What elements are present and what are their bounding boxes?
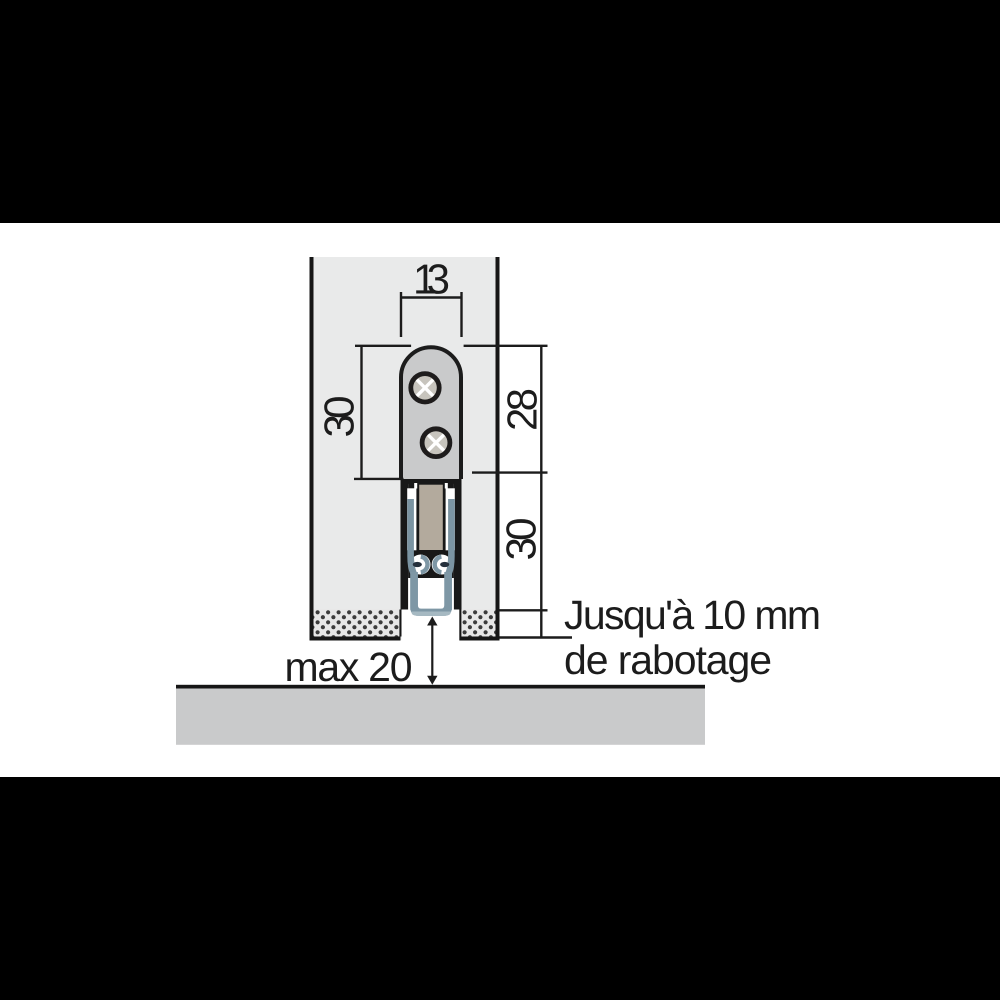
svg-text:30: 30 — [498, 518, 545, 561]
svg-text:13: 13 — [413, 256, 450, 303]
svg-text:28: 28 — [499, 388, 546, 431]
svg-text:de rabotage: de rabotage — [564, 637, 772, 683]
svg-text:30: 30 — [316, 396, 363, 438]
svg-text:max 20: max 20 — [285, 644, 413, 690]
svg-text:Jusqu'à 10 mm: Jusqu'à 10 mm — [564, 592, 821, 638]
